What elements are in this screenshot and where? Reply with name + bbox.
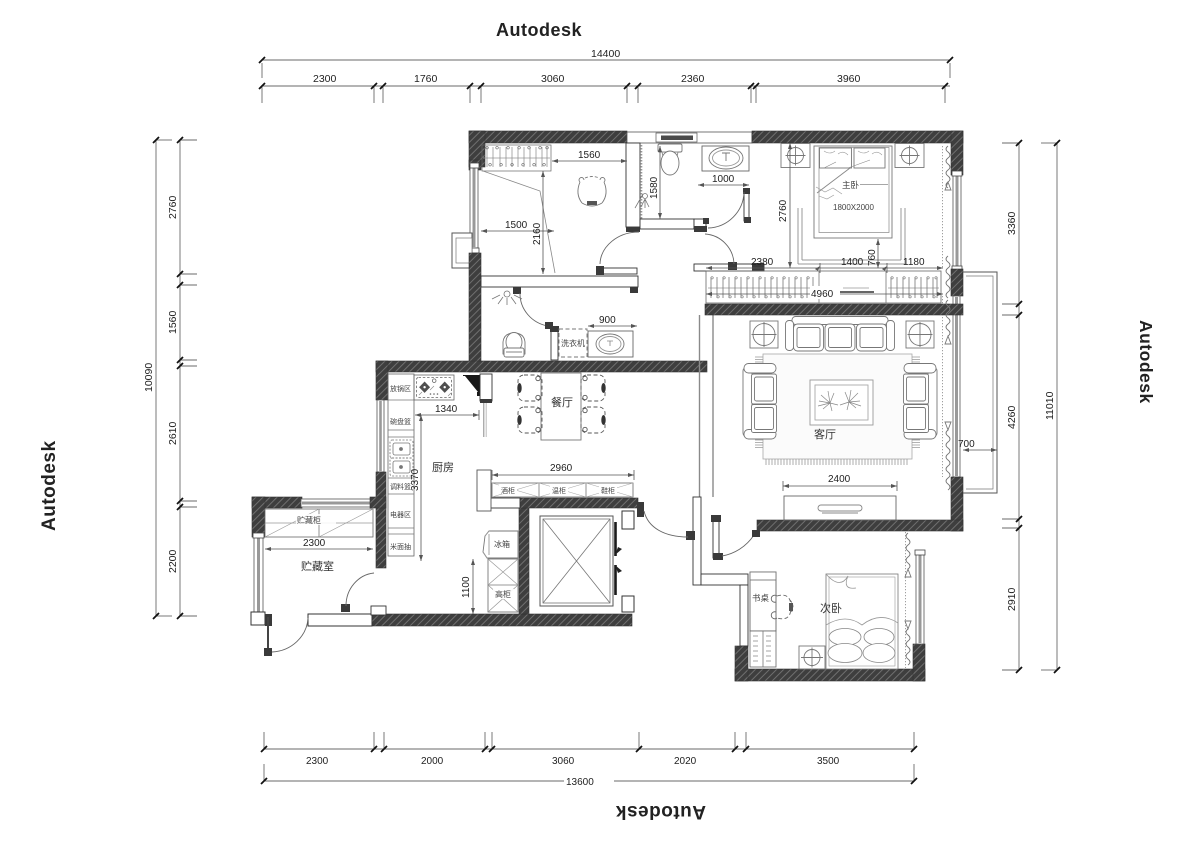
svg-text:2020: 2020	[674, 756, 697, 767]
svg-text:700: 700	[958, 439, 975, 450]
svg-text:2400: 2400	[828, 474, 851, 485]
svg-text:餐厅: 餐厅	[551, 395, 573, 409]
svg-text:米面抽: 米面抽	[390, 542, 411, 551]
svg-text:3370: 3370	[410, 468, 421, 491]
svg-text:2300: 2300	[303, 538, 326, 549]
svg-text:2760: 2760	[778, 199, 789, 222]
svg-text:客厅: 客厅	[814, 427, 836, 441]
svg-text:厨房: 厨房	[432, 461, 454, 474]
svg-text:1180: 1180	[903, 257, 925, 268]
svg-text:4260: 4260	[1006, 405, 1018, 429]
svg-text:Autodesk: Autodesk	[1136, 320, 1156, 404]
svg-text:3960: 3960	[837, 73, 861, 85]
svg-text:次卧: 次卧	[820, 601, 842, 615]
svg-text:4960: 4960	[811, 289, 834, 300]
svg-text:14400: 14400	[591, 48, 620, 60]
svg-text:11010: 11010	[1044, 391, 1056, 420]
svg-text:1100: 1100	[461, 576, 472, 598]
svg-text:1500: 1500	[505, 220, 528, 231]
svg-text:调料篮: 调料篮	[390, 482, 411, 491]
svg-text:1760: 1760	[414, 73, 438, 85]
svg-text:10090: 10090	[143, 363, 155, 392]
svg-text:洗衣机: 洗衣机	[561, 338, 585, 348]
svg-text:2610: 2610	[167, 421, 179, 445]
svg-text:碗盘篮: 碗盘篮	[390, 417, 411, 426]
svg-text:900: 900	[599, 315, 616, 326]
svg-text:主卧: 主卧	[842, 180, 860, 190]
svg-text:Autodesk: Autodesk	[39, 440, 60, 531]
svg-text:鞋柜: 鞋柜	[601, 486, 615, 495]
svg-text:1560: 1560	[167, 310, 179, 334]
svg-text:1580: 1580	[649, 176, 660, 199]
svg-text:贮藏柜: 贮藏柜	[297, 515, 321, 525]
svg-text:3360: 3360	[1006, 211, 1018, 235]
svg-text:温柜: 温柜	[552, 486, 566, 495]
svg-text:3500: 3500	[817, 756, 840, 767]
svg-text:2760: 2760	[167, 195, 179, 219]
svg-text:1800X2000: 1800X2000	[833, 203, 874, 212]
svg-text:760: 760	[867, 249, 878, 266]
svg-text:电器区: 电器区	[390, 510, 411, 519]
svg-text:3060: 3060	[552, 756, 575, 767]
svg-text:1000: 1000	[712, 174, 735, 185]
svg-text:2200: 2200	[167, 549, 179, 573]
svg-text:2380: 2380	[751, 257, 774, 268]
svg-text:酒柜: 酒柜	[501, 486, 515, 495]
svg-text:2360: 2360	[681, 73, 705, 85]
svg-text:1400: 1400	[841, 257, 864, 268]
svg-text:冰箱: 冰箱	[494, 539, 510, 549]
svg-text:3060: 3060	[541, 73, 565, 85]
svg-text:2160: 2160	[532, 222, 543, 245]
svg-text:2300: 2300	[306, 756, 329, 767]
svg-text:2960: 2960	[550, 463, 573, 474]
svg-text:1340: 1340	[435, 404, 458, 415]
svg-text:13600: 13600	[566, 777, 594, 788]
svg-text:2300: 2300	[313, 73, 337, 85]
svg-text:2000: 2000	[421, 756, 444, 767]
svg-text:Autodesk: Autodesk	[496, 20, 583, 40]
svg-text:1560: 1560	[578, 150, 601, 161]
svg-text:高柜: 高柜	[495, 589, 511, 599]
svg-text:Autodesk: Autodesk	[615, 801, 706, 822]
svg-text:2910: 2910	[1006, 587, 1018, 611]
svg-text:书桌: 书桌	[752, 593, 770, 603]
svg-text:贮藏室: 贮藏室	[301, 559, 334, 573]
svg-text:放锅区: 放锅区	[390, 384, 411, 393]
